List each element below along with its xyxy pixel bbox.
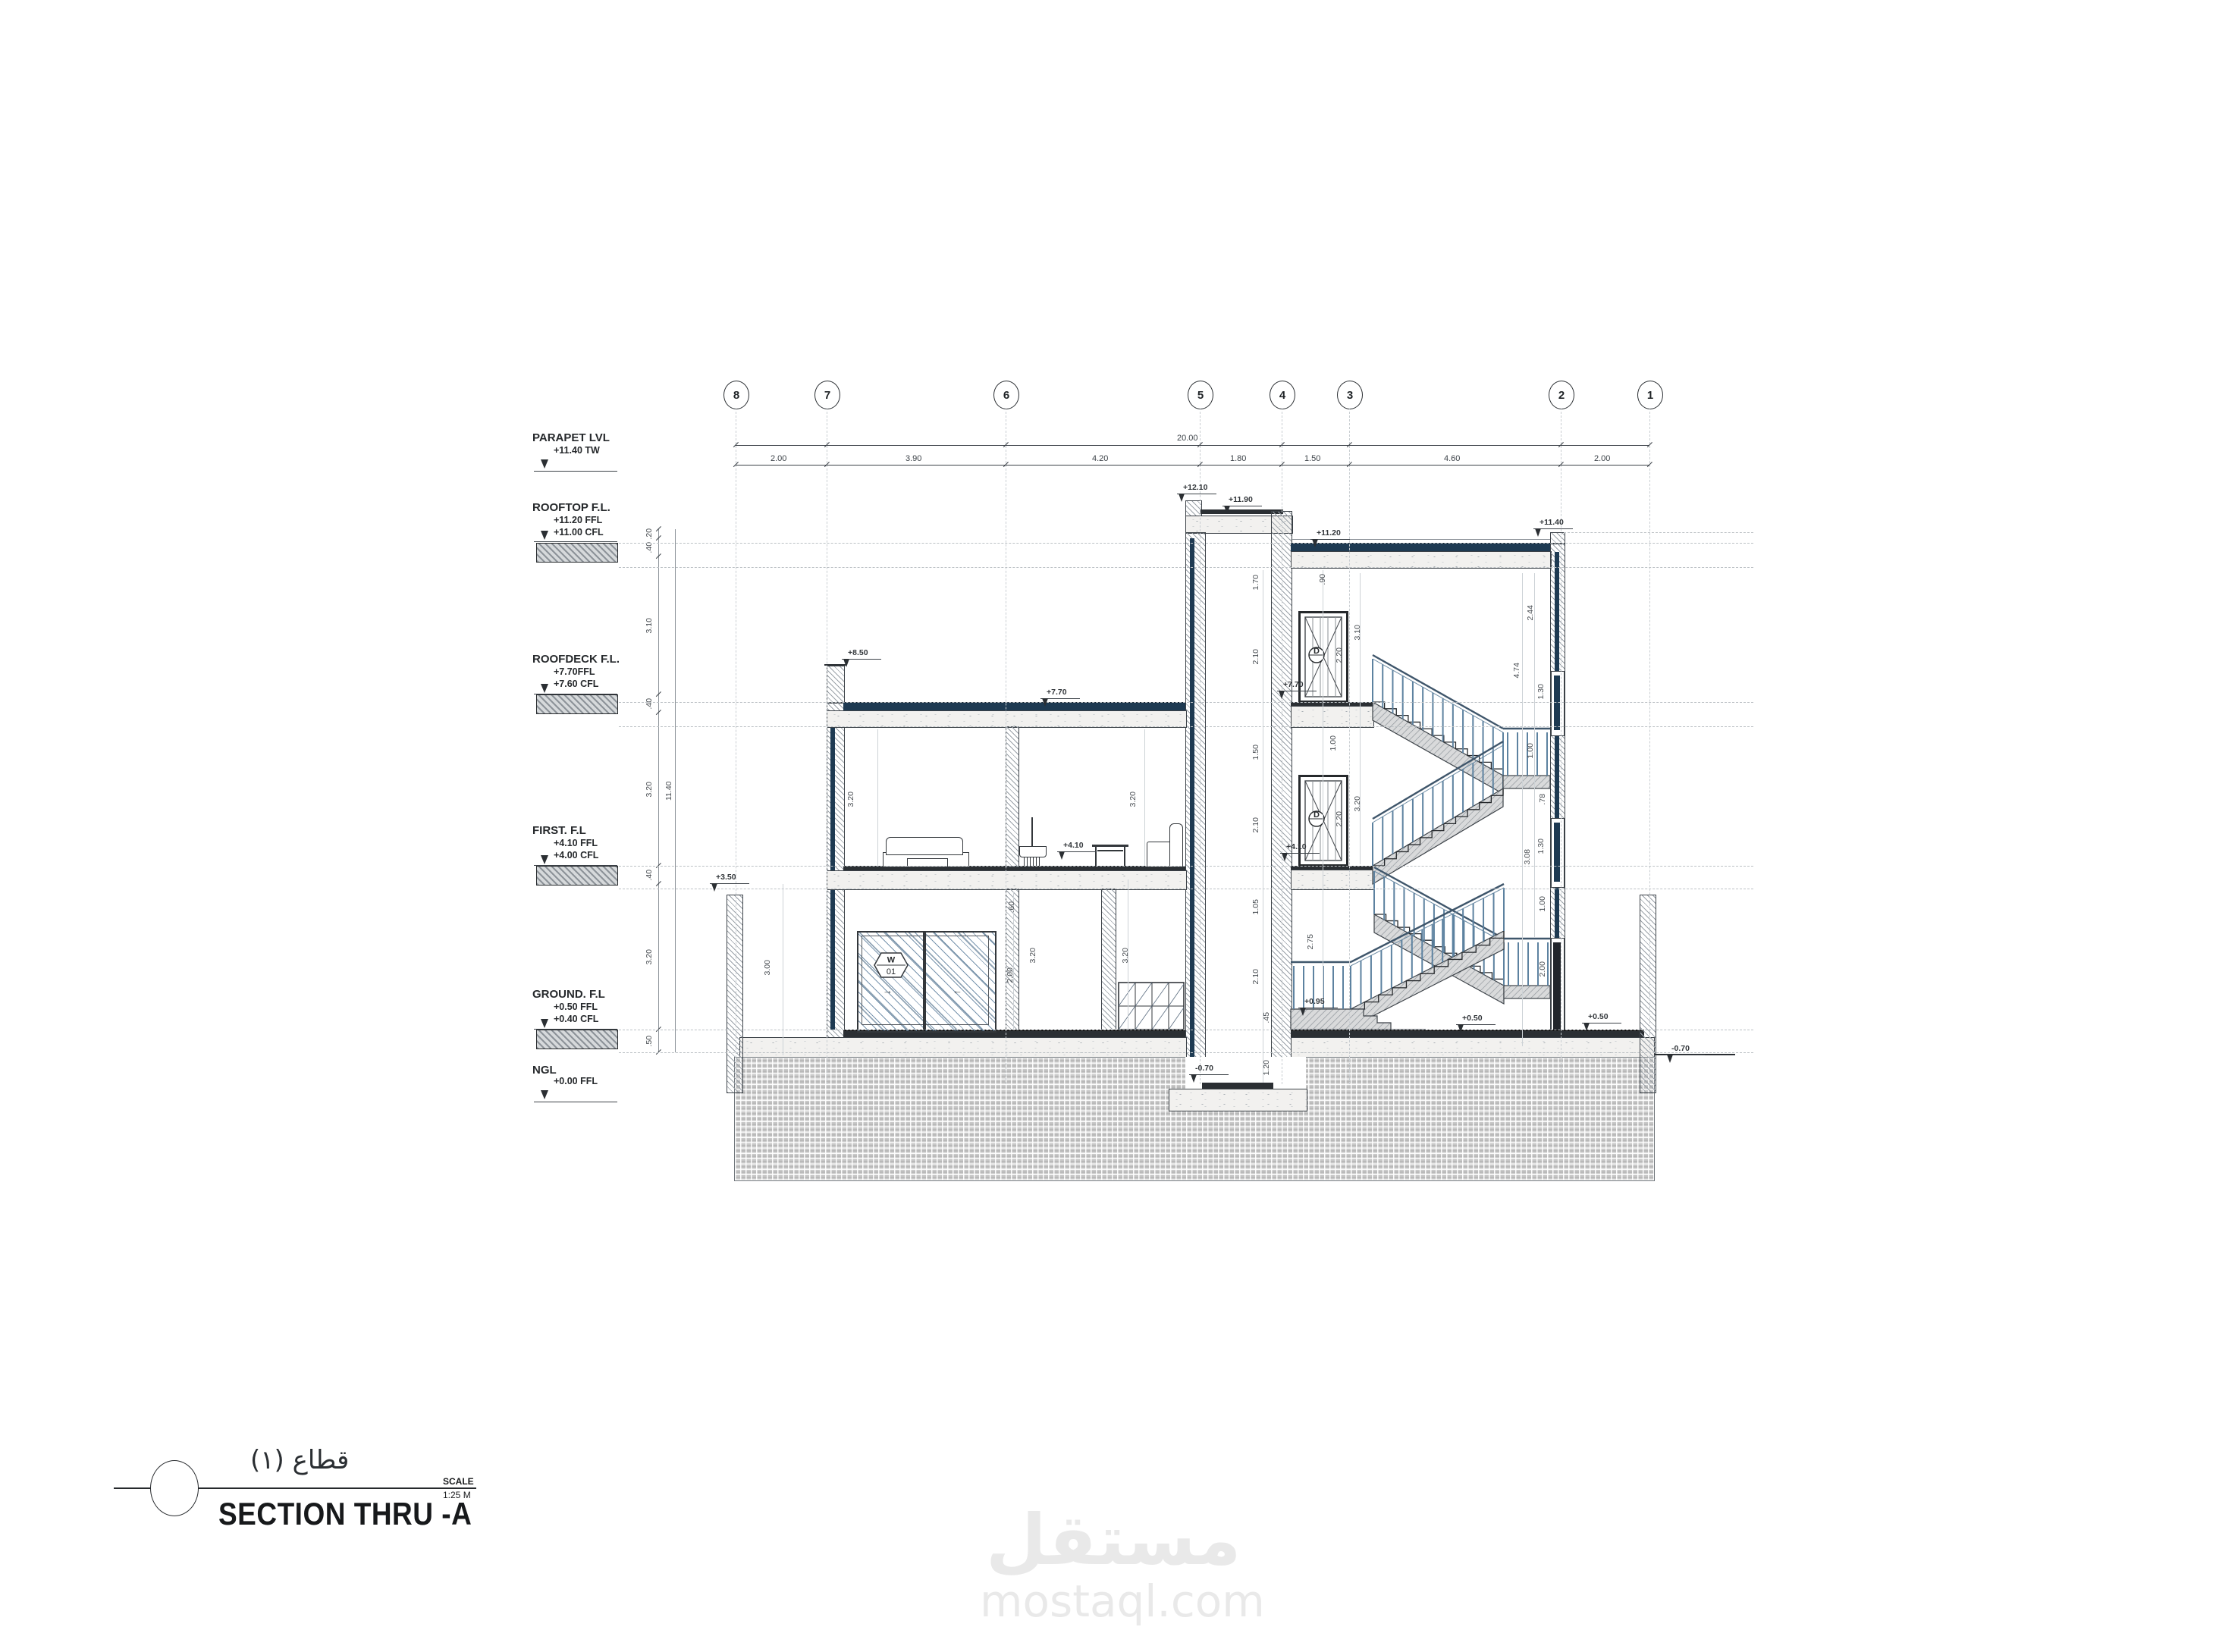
level-dash-line	[619, 889, 1753, 889]
grid-line-2	[1561, 408, 1562, 1084]
segment-dim-text: 1.80	[1230, 455, 1246, 463]
spot-level-triangle	[1282, 853, 1288, 861]
spot-level-triangle	[1191, 1074, 1197, 1083]
overall-dim-text: 20.00	[1177, 434, 1198, 443]
spot-level-triangle	[1279, 691, 1285, 699]
grid-bubble-7: 7	[814, 381, 840, 409]
level-slab-bar	[536, 1030, 618, 1049]
level-triangle-marker	[541, 531, 548, 540]
spot-level-triangle	[1312, 539, 1318, 547]
spot-level-triangle	[1458, 1024, 1464, 1033]
grid-line-3	[1349, 408, 1351, 1084]
side-chain-line-2	[675, 529, 676, 1052]
dimension-text: 2.75	[1307, 929, 1315, 954]
dimension-text: 1.30	[1537, 834, 1546, 858]
side-dim-text: .50	[645, 1030, 654, 1052]
dimension-text: 1.30	[1537, 679, 1546, 704]
level-value: +0.50 FFL	[554, 1002, 598, 1012]
dimension-text: 3.20	[1029, 943, 1037, 967]
spot-level-triangle	[1042, 698, 1048, 707]
grid-bubble-1: 1	[1637, 381, 1663, 409]
spot-level-text: +0.50	[1588, 1013, 1609, 1021]
overall-height-dim: 11.40	[665, 777, 673, 804]
spot-level-triangle	[711, 883, 717, 892]
dimension-text: 1.20	[1263, 1055, 1271, 1080]
spot-level-text: +11.40	[1539, 519, 1564, 527]
spot-level-triangle	[1059, 851, 1065, 860]
extension-line	[877, 729, 878, 866]
spot-level-text: +0.95	[1304, 998, 1325, 1006]
dimension-text: 2.20	[1335, 807, 1344, 831]
level-value: +4.00 CFL	[554, 851, 598, 860]
level-slab-bar	[536, 543, 618, 563]
side-dim-text: 3.20	[645, 946, 654, 967]
level-value: +4.10 FFL	[554, 839, 598, 848]
side-chain-line	[658, 529, 659, 1052]
segment-dim-text: 2.00	[771, 455, 786, 463]
level-dash-line	[619, 543, 1753, 544]
level-line	[534, 471, 617, 472]
level-name: FIRST. F.L	[532, 825, 617, 836]
level-name: ROOFDECK F.L.	[532, 654, 617, 665]
dimension-text: 3.20	[1354, 792, 1362, 816]
dimension-text: 3.10	[1354, 620, 1362, 644]
spot-level-text: +3.50	[716, 873, 736, 882]
segment-dim-text: 2.00	[1594, 455, 1610, 463]
grid-bubble-2: 2	[1549, 381, 1574, 409]
spot-level-text: +4.10	[1286, 843, 1307, 851]
dimension-text: 3.20	[1129, 787, 1138, 811]
extension-line	[1144, 729, 1145, 866]
grid-line-8	[736, 408, 737, 1084]
dimension-text: 2.10	[1252, 813, 1260, 837]
level-triangle-marker	[541, 855, 548, 864]
level-slab-bar	[536, 866, 618, 886]
dimension-text: 1.05	[1252, 895, 1260, 919]
spot-level-text: +4.10	[1063, 842, 1084, 850]
spot-level-triangle	[1300, 1008, 1306, 1016]
extension-line	[1522, 573, 1523, 1046]
dimension-text: 3.20	[1122, 943, 1130, 967]
spot-level-triangle	[1667, 1055, 1673, 1063]
side-dim-text: .40	[645, 537, 654, 558]
side-dim-text: 3.20	[645, 779, 654, 800]
level-dash-line	[619, 866, 1753, 867]
grid-line-5	[1200, 408, 1201, 1084]
dimension-text: 4.74	[1513, 658, 1521, 682]
level-triangle-marker	[541, 1019, 548, 1028]
spot-level-triangle	[1179, 494, 1185, 502]
level-name: ROOFTOP F.L.	[532, 502, 617, 513]
section-drawing-sheet: W 01 → ← D	[0, 0, 2219, 1652]
level-line	[534, 1102, 617, 1102]
spot-level-triangle	[843, 659, 849, 667]
grid-bubble-4: 4	[1270, 381, 1295, 409]
extension-line	[783, 884, 783, 1055]
dimension-text: 1.00	[1527, 738, 1535, 763]
dimension-text: .78	[1539, 787, 1547, 811]
level-dash-line	[619, 1052, 1753, 1053]
level-triangle-marker	[541, 1090, 548, 1099]
level-dash-line	[619, 567, 1753, 568]
dimension-text: 2.20	[1335, 643, 1344, 667]
level-value: +7.70FFL	[554, 667, 595, 677]
spot-level-text: +7.70	[1047, 688, 1067, 697]
grid-bubble-5: 5	[1188, 381, 1213, 409]
level-triangle-marker	[541, 684, 548, 693]
dimension-text: .90	[1319, 567, 1327, 591]
level-value: +11.40 TW	[554, 446, 600, 456]
grid-line-1	[1649, 408, 1651, 1084]
spot-level-text: +12.10	[1183, 484, 1207, 492]
spot-level-text: +11.90	[1229, 496, 1253, 504]
dimension-text: 1.00	[1329, 731, 1338, 755]
dimension-text: 2.00	[1539, 957, 1547, 981]
spot-level-triangle	[1583, 1023, 1590, 1031]
level-value: +7.60 CFL	[554, 679, 598, 689]
level-value: +0.00 FFL	[554, 1077, 598, 1086]
spot-level-text: -0.70	[1671, 1045, 1690, 1053]
spot-level-text: +11.20	[1317, 529, 1341, 538]
extension-line	[1360, 573, 1361, 864]
annotation-layer: 8765432120.002.003.904.201.801.504.602.0…	[0, 0, 2219, 1652]
dimension-text: .45	[1263, 1005, 1271, 1030]
dimension-text: 1.50	[1252, 740, 1260, 764]
spot-level-text: +8.50	[848, 649, 868, 657]
grid-line-4	[1282, 408, 1283, 1084]
dimension-text: 1.00	[1539, 892, 1547, 916]
level-name: GROUND. F.L	[532, 989, 617, 1000]
spot-level-text: +7.70	[1283, 681, 1304, 689]
side-dim-text: .40	[645, 864, 654, 886]
level-value: +0.40 CFL	[554, 1014, 598, 1024]
level-triangle-marker	[541, 459, 548, 469]
grid-bubble-8: 8	[723, 381, 749, 409]
dimension-text: 2.10	[1252, 644, 1260, 669]
extension-line	[1323, 570, 1323, 1005]
level-name: NGL	[532, 1064, 617, 1076]
spot-level-text: +0.50	[1462, 1014, 1483, 1023]
side-dim-text: 3.10	[645, 615, 654, 636]
grid-bubble-3: 3	[1337, 381, 1363, 409]
segment-dim-text: 3.90	[905, 455, 921, 463]
dimension-text: 3.08	[1524, 845, 1532, 869]
segment-dim-text: 4.20	[1092, 455, 1108, 463]
spot-level-triangle	[1224, 506, 1230, 514]
segment-dim-line	[736, 465, 1649, 466]
level-line	[534, 541, 617, 542]
dimension-text: 2.44	[1527, 600, 1535, 625]
spot-level-triangle	[1535, 528, 1541, 537]
level-value: +11.20 FFL	[554, 516, 602, 525]
level-dash-line	[619, 702, 1753, 703]
dimension-text: 2.10	[1252, 964, 1260, 989]
side-dim-text: .40	[645, 693, 654, 714]
segment-dim-text: 1.50	[1304, 455, 1320, 463]
level-slab-bar	[536, 694, 618, 714]
level-dash-line	[619, 726, 1753, 727]
level-name: PARAPET LVL	[532, 432, 617, 444]
grid-bubble-6: 6	[993, 381, 1019, 409]
dimension-text: 3.20	[847, 787, 855, 811]
dimension-text: .60	[1008, 895, 1016, 919]
segment-dim-text: 4.60	[1444, 455, 1460, 463]
overall-dim-line	[736, 445, 1649, 446]
dimension-text: 2.00	[1006, 963, 1015, 987]
level-dash-line	[1564, 532, 1753, 533]
dimension-text: 1.70	[1252, 570, 1260, 594]
level-value: +11.00 CFL	[554, 528, 604, 538]
dimension-text: 3.00	[764, 955, 772, 980]
spot-level-text: -0.70	[1195, 1064, 1213, 1073]
grid-line-7	[827, 408, 828, 1084]
